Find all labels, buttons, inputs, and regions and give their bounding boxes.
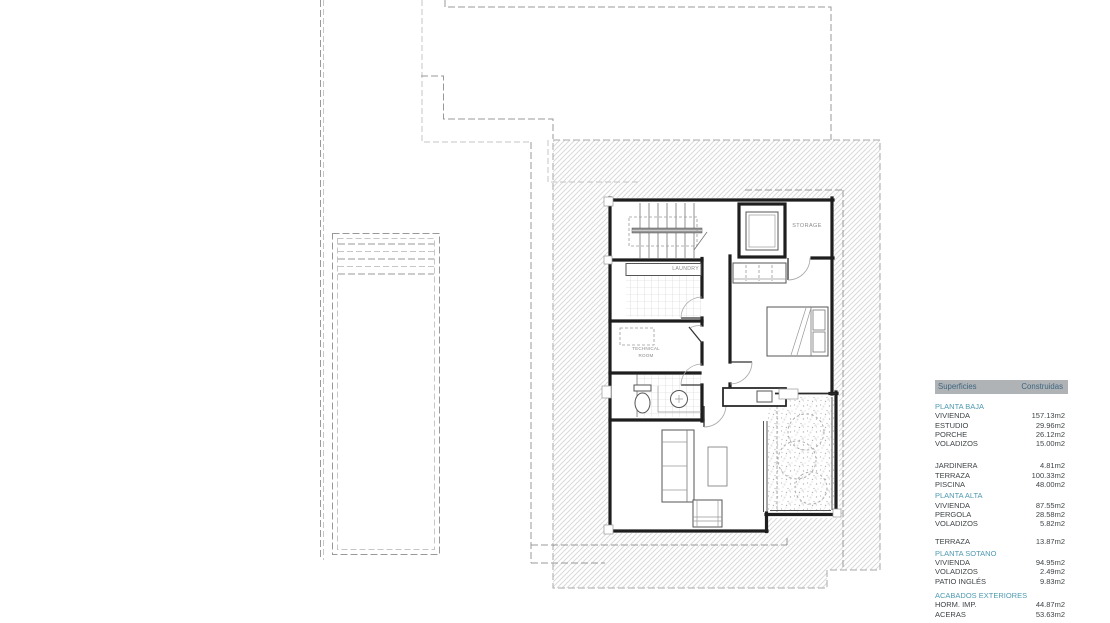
technical-room-label-line2: ROOM (638, 353, 653, 358)
row-label: VIVIENDA (935, 411, 970, 420)
architectural-plan-page: STORAGE LAUNDRY TECHNICAL ROOM (0, 0, 1110, 623)
group-title: PLANTA SOTANO (935, 549, 1068, 558)
row-value: 5.82m2 (1040, 519, 1065, 528)
row-label: TERRAZA (935, 471, 970, 480)
row-label: HORM. IMP. (935, 600, 977, 609)
table-row: VOLADIZOS 2.49m2 (935, 567, 1068, 576)
row-label: JARDINERA (935, 461, 978, 470)
header-col-construidas: Construidas (1021, 382, 1063, 391)
table-row: JARDINERA 4.81m2 (935, 461, 1068, 470)
row-label: PORCHE (935, 430, 967, 439)
pillow (813, 310, 825, 330)
row-label: VIVIENDA (935, 501, 970, 510)
row-label: VIVIENDA (935, 558, 970, 567)
building: STORAGE LAUNDRY TECHNICAL ROOM (602, 197, 841, 534)
site-boundary (321, 0, 324, 560)
toilet-bowl (635, 393, 650, 413)
group-title: ACABADOS EXTERIORES (935, 591, 1068, 600)
toilet-tank (634, 385, 651, 391)
row-label: ESTUDIO (935, 421, 968, 430)
table-row: VIVIENDA 157.13m2 (935, 411, 1068, 420)
row-value: 53.63m2 (1036, 610, 1065, 619)
row-value: 26.12m2 (1036, 430, 1065, 439)
group-terraza-alta: TERRAZA 13.87m2 (935, 537, 1068, 546)
pool (333, 234, 440, 555)
row-value: 9.83m2 (1040, 577, 1065, 586)
header-col-superficies: Superficies (938, 382, 977, 391)
row-label: VOLADIZOS (935, 567, 978, 576)
table-row: ACERAS 53.63m2 (935, 610, 1068, 619)
table-row: VOLADIZOS 15.00m2 (935, 439, 1068, 448)
table-row: VIVIENDA 87.55m2 (935, 501, 1068, 510)
row-label: PATIO INGLÉS (935, 577, 986, 586)
group-planta-sotano: PLANTA SOTANO VIVIENDA 94.95m2 VOLADIZOS… (935, 549, 1068, 586)
table-row: PERGOLA 28.58m2 (935, 510, 1068, 519)
row-label: PISCINA (935, 480, 965, 489)
group-planta-alta: PLANTA ALTA VIVIENDA 87.55m2 PERGOLA 28.… (935, 491, 1068, 528)
coffee-table (708, 447, 727, 486)
table-row: PATIO INGLÉS 9.83m2 (935, 577, 1068, 586)
elevator-shaft (739, 204, 785, 257)
group-planta-baja: PLANTA BAJA VIVIENDA 157.13m2 ESTUDIO 29… (935, 402, 1068, 448)
row-label: TERRAZA (935, 537, 970, 546)
table-row: PORCHE 26.12m2 (935, 430, 1068, 439)
row-label: PERGOLA (935, 510, 971, 519)
armchair (693, 500, 722, 527)
row-value: 29.96m2 (1036, 421, 1065, 430)
row-label: VOLADIZOS (935, 519, 978, 528)
row-value: 15.00m2 (1036, 439, 1065, 448)
table-row: TERRAZA 100.33m2 (935, 471, 1068, 480)
group-acabados-exteriores: ACABADOS EXTERIORES HORM. IMP. 44.87m2 A… (935, 591, 1068, 619)
wardrobe (733, 263, 786, 283)
row-value: 13.87m2 (1036, 537, 1065, 546)
table-row: ESTUDIO 29.96m2 (935, 421, 1068, 430)
row-label: VOLADIZOS (935, 439, 978, 448)
row-value: 87.55m2 (1036, 501, 1065, 510)
surfaces-table-header: Superficies Construidas (935, 380, 1068, 394)
row-value: 2.49m2 (1040, 567, 1065, 576)
row-value: 157.13m2 (1032, 411, 1065, 420)
row-value: 100.33m2 (1032, 471, 1065, 480)
table-row: HORM. IMP. 44.87m2 (935, 600, 1068, 609)
row-value: 28.58m2 (1036, 510, 1065, 519)
counter-sink (757, 391, 772, 402)
row-value: 44.87m2 (1036, 600, 1065, 609)
table-row: VIVIENDA 94.95m2 (935, 558, 1068, 567)
bed (767, 307, 828, 356)
surfaces-table: Superficies Construidas PLANTA BAJA VIVI… (935, 380, 1068, 619)
group-title: PLANTA ALTA (935, 491, 1068, 500)
table-row: PISCINA 48.00m2 (935, 480, 1068, 489)
row-label: ACERAS (935, 610, 966, 619)
group-title: PLANTA BAJA (935, 402, 1068, 411)
row-value: 94.95m2 (1036, 558, 1065, 567)
group-exteriores-baja: JARDINERA 4.81m2 TERRAZA 100.33m2 PISCIN… (935, 461, 1068, 489)
opening-marker (779, 389, 798, 399)
row-value: 48.00m2 (1036, 480, 1065, 489)
table-row: VOLADIZOS 5.82m2 (935, 519, 1068, 528)
storage-label: STORAGE (792, 223, 822, 229)
technical-room-label-line1: TECHNICAL (632, 346, 660, 351)
table-row: TERRAZA 13.87m2 (935, 537, 1068, 546)
pillow (813, 332, 825, 352)
row-value: 4.81m2 (1040, 461, 1065, 470)
sofa (662, 430, 694, 502)
laundry-floor-tiles (626, 276, 701, 317)
terrace (768, 396, 834, 512)
laundry-label: LAUNDRY (672, 266, 699, 272)
